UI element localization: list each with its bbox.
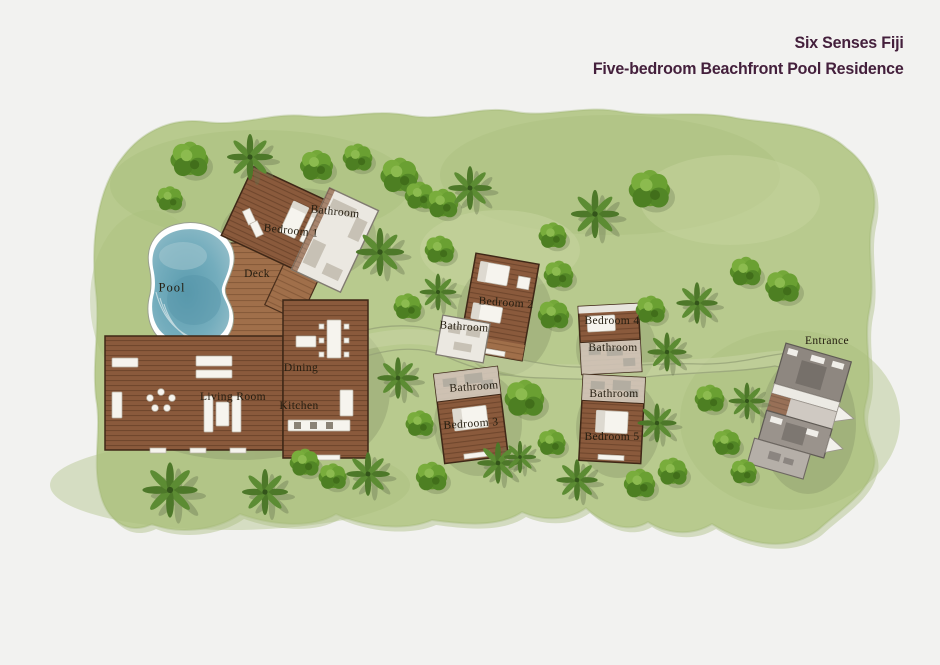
label-dining: Dining: [284, 362, 318, 374]
residence-name: Five-bedroom Beachfront Pool Residence: [593, 56, 904, 82]
label-entrance: Entrance: [805, 335, 849, 347]
label-bathroom4: Bathroom: [588, 342, 637, 354]
resort-name: Six Senses Fiji: [593, 30, 904, 56]
label-bedroom4: Bedroom 4: [584, 315, 639, 327]
kitchen-appliances: [294, 422, 333, 429]
site-plan: PoolDeckBedroom 1BathroomLiving RoomDini…: [0, 0, 940, 665]
label-pool: Pool: [159, 281, 186, 296]
plan-title: Six Senses Fiji Five-bedroom Beachfront …: [593, 30, 904, 82]
dining-kitchen-wing: [283, 300, 368, 458]
label-deck: Deck: [244, 268, 270, 280]
label-living-room: Living Room: [200, 391, 266, 403]
label-bedroom5: Bedroom 5: [584, 431, 639, 443]
label-bathroom5: Bathroom: [589, 388, 638, 400]
label-kitchen: Kitchen: [279, 400, 318, 412]
